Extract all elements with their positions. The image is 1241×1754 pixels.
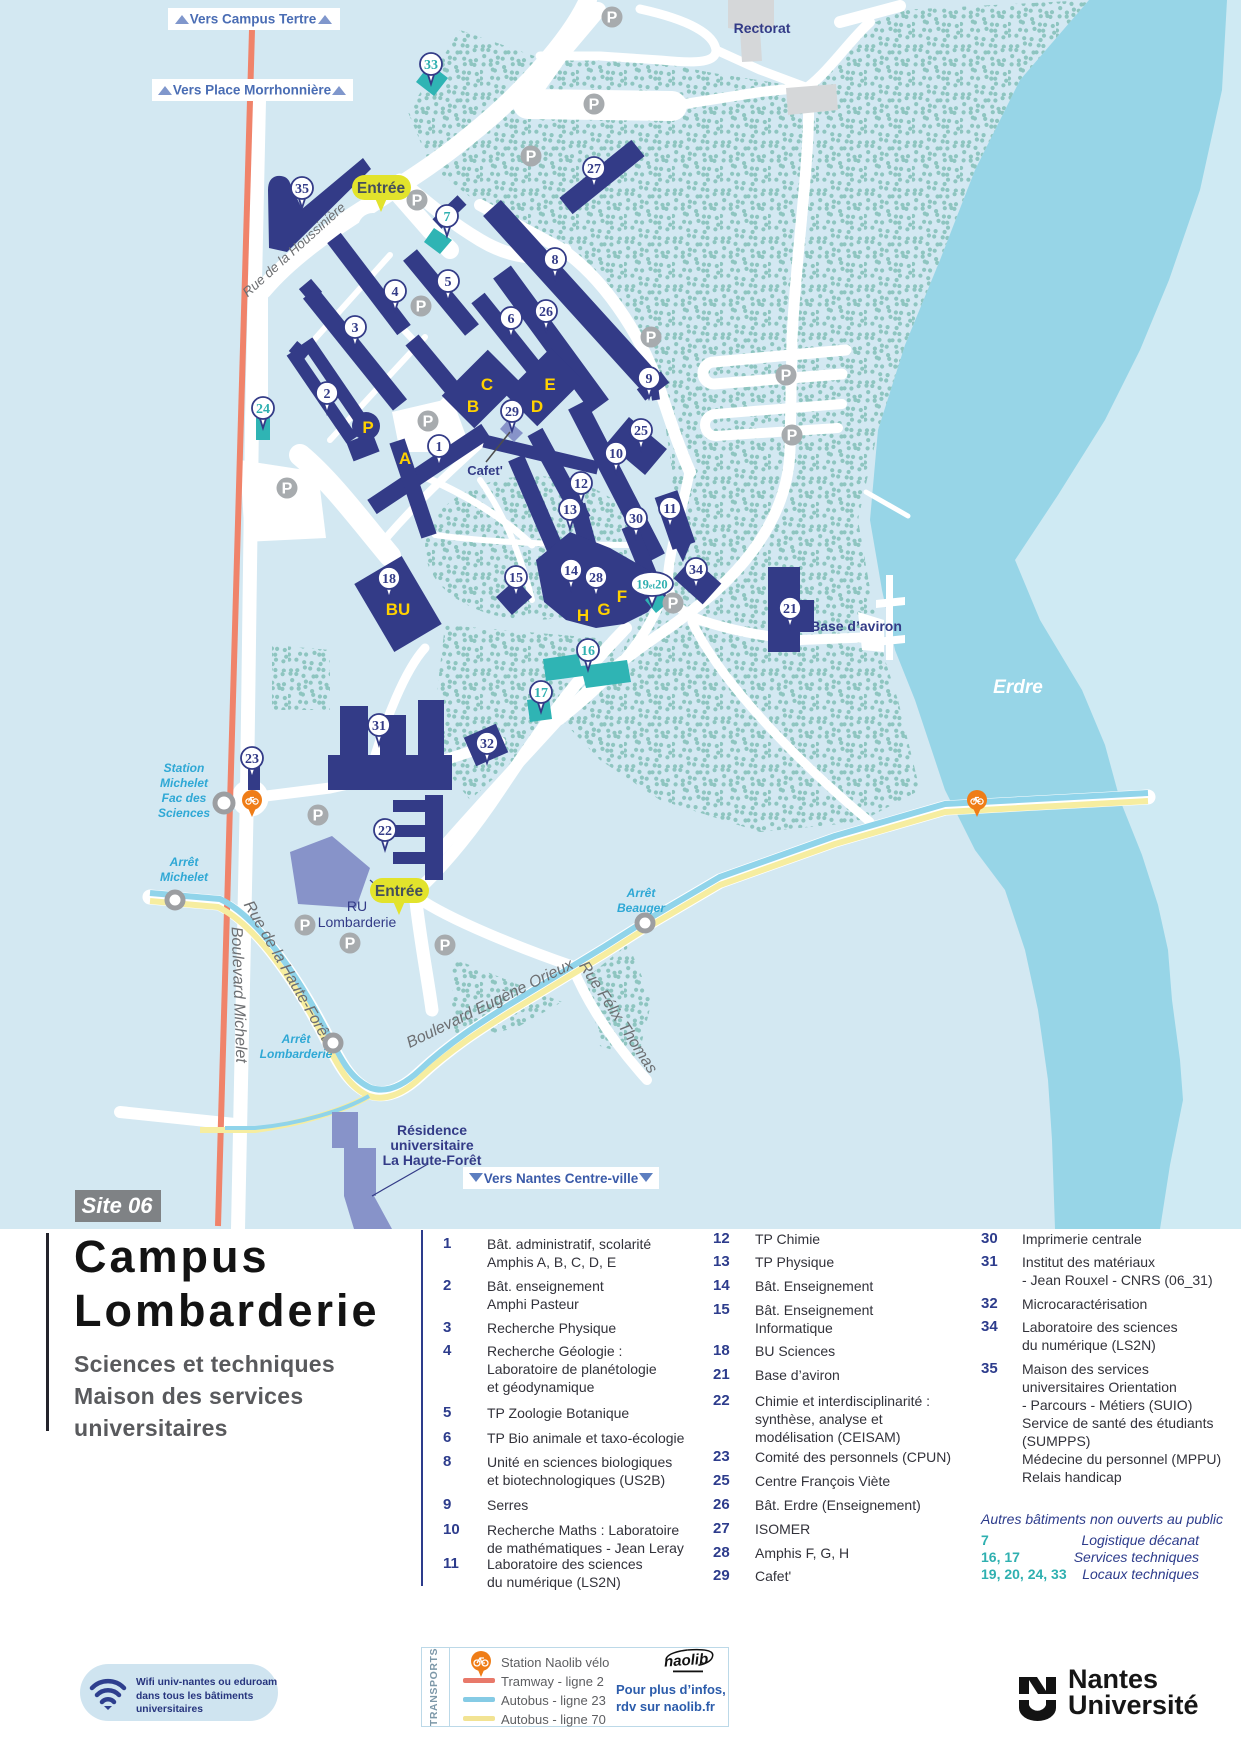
svg-text:Entrée: Entrée — [357, 180, 406, 197]
svg-text:BU: BU — [386, 600, 411, 619]
svg-text:C: C — [481, 375, 493, 394]
svg-text:15: 15 — [509, 571, 523, 586]
svg-text:D: D — [531, 397, 543, 416]
svg-text:P: P — [668, 596, 679, 613]
svg-text:Cafet': Cafet' — [467, 463, 503, 478]
svg-text:B: B — [467, 397, 479, 416]
svg-text:RU: RU — [347, 898, 367, 914]
svg-text:Résidence: Résidence — [397, 1122, 467, 1138]
svg-text:P: P — [313, 808, 324, 825]
svg-text:14: 14 — [564, 564, 578, 579]
svg-text:Lombarderie: Lombarderie — [318, 914, 397, 930]
svg-text:P: P — [412, 193, 423, 210]
svg-text:Arrêt: Arrêt — [281, 1032, 312, 1046]
svg-text:13: 13 — [563, 503, 577, 518]
svg-text:E: E — [544, 375, 555, 394]
svg-text:30: 30 — [629, 512, 643, 527]
svg-text:Arrêt: Arrêt — [626, 886, 657, 900]
svg-text:Arrêt: Arrêt — [169, 855, 200, 869]
svg-text:P: P — [440, 938, 451, 955]
svg-text:35: 35 — [295, 182, 309, 197]
svg-text:6: 6 — [508, 312, 515, 327]
svg-text:11: 11 — [663, 502, 676, 517]
svg-text:25: 25 — [634, 424, 648, 439]
svg-text:Lombarderie: Lombarderie — [260, 1047, 333, 1061]
svg-text:Erdre: Erdre — [993, 677, 1043, 698]
svg-text:2: 2 — [324, 387, 331, 402]
svg-text:P: P — [362, 418, 373, 437]
svg-text:P: P — [423, 414, 434, 431]
svg-text:La Haute-Forêt: La Haute-Forêt — [383, 1152, 482, 1168]
svg-text:H: H — [577, 606, 589, 625]
svg-text:1: 1 — [436, 440, 443, 455]
svg-text:G: G — [597, 600, 610, 619]
svg-text:4: 4 — [392, 285, 399, 300]
svg-text:33: 33 — [424, 58, 438, 73]
svg-text:Base d’aviron: Base d’aviron — [810, 618, 902, 634]
svg-text:24: 24 — [256, 402, 270, 417]
svg-text:Entrée: Entrée — [375, 883, 424, 900]
svg-text:P: P — [345, 936, 356, 953]
svg-text:7: 7 — [444, 210, 451, 225]
svg-text:Fac des: Fac des — [162, 791, 207, 805]
svg-text:8: 8 — [552, 253, 559, 268]
svg-text:17: 17 — [534, 686, 548, 701]
svg-text:28: 28 — [589, 571, 603, 586]
svg-text:Station: Station — [164, 761, 205, 775]
svg-text:P: P — [416, 299, 427, 316]
svg-text:P: P — [781, 368, 792, 385]
svg-text:Michelet: Michelet — [160, 870, 209, 884]
svg-text:9: 9 — [646, 372, 653, 387]
svg-text:Rectorat: Rectorat — [734, 20, 791, 36]
svg-text:P: P — [607, 10, 618, 27]
svg-text:31: 31 — [372, 719, 386, 734]
svg-text:Sciences: Sciences — [158, 806, 210, 820]
svg-text:P: P — [787, 428, 798, 445]
svg-text:P: P — [589, 97, 600, 114]
svg-text:P: P — [526, 149, 537, 166]
svg-text:21: 21 — [783, 602, 797, 617]
svg-text:5: 5 — [445, 275, 452, 290]
svg-text:P: P — [646, 330, 657, 347]
svg-text:Vers Nantes Centre-ville: Vers Nantes Centre-ville — [484, 1171, 639, 1186]
svg-text:A: A — [399, 449, 411, 468]
svg-text:Site 06: Site 06 — [82, 1193, 154, 1218]
svg-text:23: 23 — [245, 752, 259, 767]
svg-text:Vers Campus Tertre: Vers Campus Tertre — [190, 12, 317, 27]
svg-text:Beauger: Beauger — [617, 901, 666, 915]
svg-text:22: 22 — [378, 824, 392, 839]
svg-text:10: 10 — [609, 447, 623, 462]
svg-text:P: P — [282, 481, 293, 498]
svg-text:Vers Place Morrhonnière: Vers Place Morrhonnière — [173, 83, 332, 98]
svg-text:P: P — [300, 918, 311, 935]
svg-text:29: 29 — [505, 405, 519, 420]
svg-text:32: 32 — [480, 737, 494, 752]
svg-text:18: 18 — [382, 572, 396, 587]
svg-text:F: F — [617, 587, 627, 606]
svg-text:naolib: naolib — [664, 1651, 709, 1671]
svg-text:3: 3 — [352, 321, 359, 336]
svg-text:12: 12 — [574, 477, 588, 492]
svg-text:34: 34 — [689, 563, 703, 578]
svg-text:Michelet: Michelet — [160, 776, 209, 790]
svg-text:universitaire: universitaire — [390, 1137, 473, 1153]
svg-text:26: 26 — [539, 305, 553, 320]
svg-text:16: 16 — [581, 644, 595, 659]
svg-text:27: 27 — [587, 162, 601, 177]
